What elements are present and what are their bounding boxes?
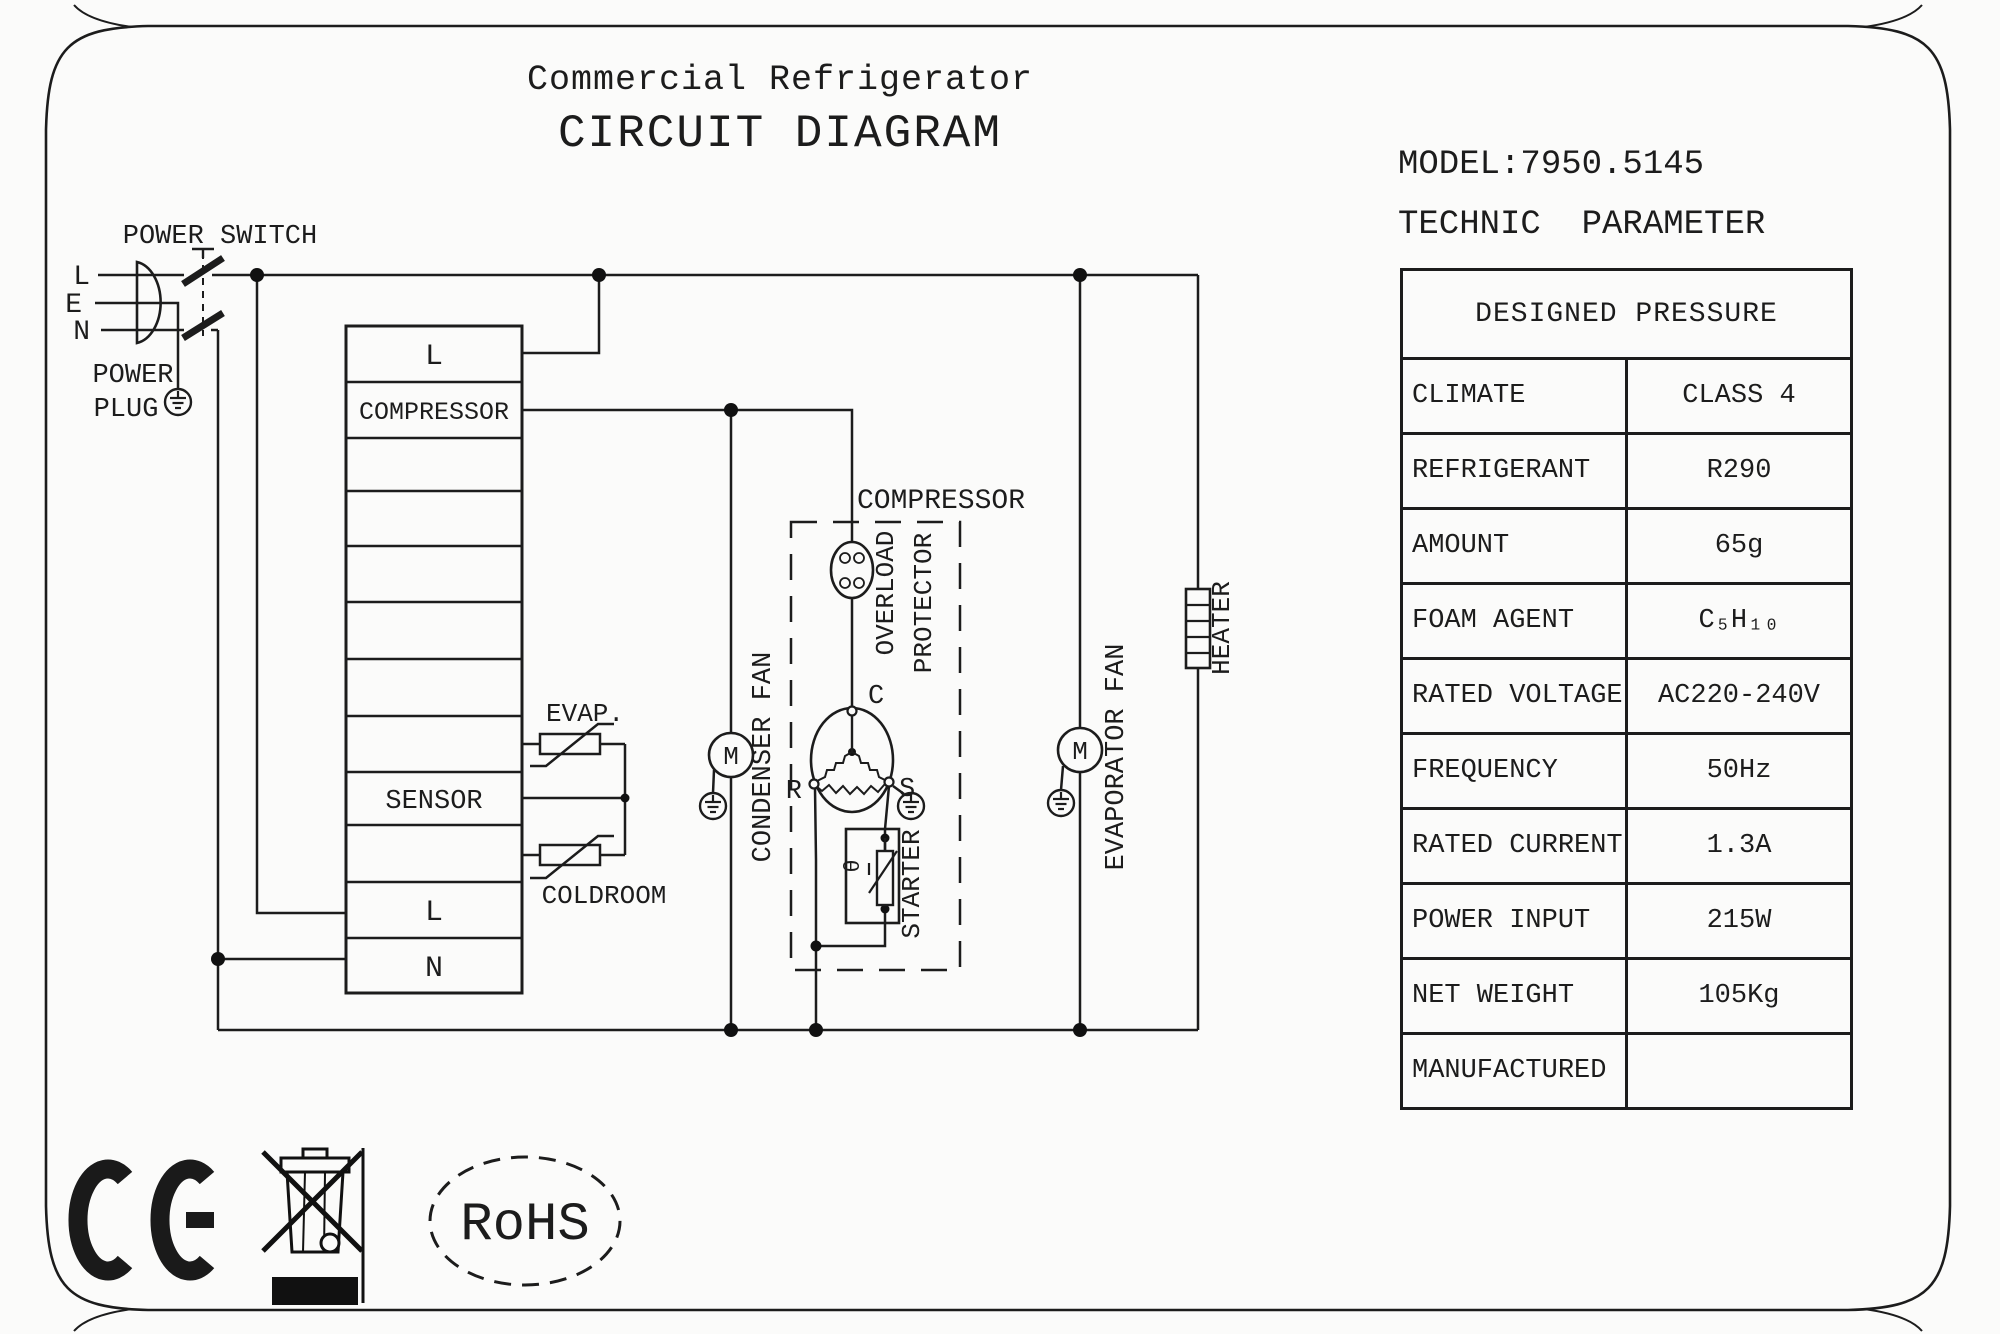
junction-dots <box>211 268 1087 1037</box>
table-row: CLIMATE CLASS 4 <box>1402 359 1852 434</box>
row-value: R290 <box>1627 434 1852 509</box>
title-block: Commercial Refrigerator CIRCUIT DIAGRAM <box>470 60 1090 160</box>
row-value: 1.3A <box>1627 809 1852 884</box>
label-evaporator-fan: EVAPORATOR FAN <box>1102 644 1132 871</box>
power-switch-symbol <box>183 249 223 338</box>
row-value: CLASS 4 <box>1627 359 1852 434</box>
row-value <box>1627 1034 1852 1109</box>
wire-l-row-riser <box>522 275 599 353</box>
technic-parameter-heading: TECHNIC PARAMETER <box>1398 206 1765 244</box>
table-header-row: DESIGNED PRESSURE <box>1402 270 1852 359</box>
ce-mark-icon <box>78 1169 214 1271</box>
compressor-motor-symbol <box>810 707 894 813</box>
label-pin-n: N <box>73 317 90 348</box>
row-value: AC220-240V <box>1627 659 1852 734</box>
corner-ornament-bottom-right <box>1864 1309 1922 1331</box>
corner-ornament-bottom-left <box>74 1309 132 1331</box>
corner-ornament-top-left <box>74 5 132 27</box>
row-label: FREQUENCY <box>1402 734 1627 809</box>
corner-ornament-top-right <box>1864 5 1922 27</box>
row-label: CLIMATE <box>1402 359 1627 434</box>
label-pin-l: L <box>73 262 90 293</box>
page-subtitle: Commercial Refrigerator <box>470 60 1090 100</box>
row-label: AMOUNT <box>1402 509 1627 584</box>
table-row: RATED CURRENT 1.3A <box>1402 809 1852 884</box>
label-coldroom: COLDROOM <box>542 881 667 911</box>
row-value: 105Kg <box>1627 959 1852 1034</box>
label-terminal-r: R <box>786 777 802 807</box>
row-value: 215W <box>1627 884 1852 959</box>
row-label: RATED CURRENT <box>1402 809 1627 884</box>
row-label: MANUFACTURED <box>1402 1034 1627 1109</box>
label-terminal-s: S <box>899 775 915 805</box>
row-label: FOAM AGENT <box>1402 584 1627 659</box>
table-row: RATED VOLTAGE AC220-240V <box>1402 659 1852 734</box>
terminal-row-l: L <box>425 340 443 374</box>
row-label: POWER INPUT <box>1402 884 1627 959</box>
label-starter: STARTER <box>897 829 927 938</box>
table-header: DESIGNED PRESSURE <box>1402 270 1852 359</box>
table-row: POWER INPUT 215W <box>1402 884 1852 959</box>
terminal-row-l2: L <box>425 896 443 930</box>
row-value: 50Hz <box>1627 734 1852 809</box>
starter-symbol <box>846 829 899 923</box>
model-number: MODEL:7950.5145 <box>1398 146 1704 184</box>
label-overload: OVERLOAD <box>871 531 901 656</box>
table-row: FREQUENCY 50Hz <box>1402 734 1852 809</box>
scanned-circuit-diagram-page: POWER SWITCH L E N POWER PLUG L COMPRESS… <box>0 0 2000 1334</box>
table-row: REFRIGERANT R290 <box>1402 434 1852 509</box>
technic-parameter-table: DESIGNED PRESSURE CLIMATE CLASS 4 REFRIG… <box>1400 268 1853 1110</box>
row-label: RATED VOLTAGE <box>1402 659 1627 734</box>
coldroom-thermistor <box>530 836 614 878</box>
table-row: AMOUNT 65g <box>1402 509 1852 584</box>
weee-bin-icon <box>263 1148 363 1305</box>
circuit-wires <box>95 275 1198 1030</box>
label-compressor: COMPRESSOR <box>857 486 1025 517</box>
table-row: MANUFACTURED <box>1402 1034 1852 1109</box>
power-plug-symbol <box>137 262 191 415</box>
wire-live-rail <box>257 275 346 913</box>
label-terminal-c: C <box>868 682 884 712</box>
ground-icon <box>165 389 191 415</box>
page-title: CIRCUIT DIAGRAM <box>470 108 1090 160</box>
label-heater: HEATER <box>1207 581 1237 675</box>
rohs-label: RoHS <box>460 1195 590 1256</box>
motor-letter-evaporator: M <box>1072 737 1088 767</box>
row-value: C₅H₁₀ <box>1627 584 1852 659</box>
ground-icon <box>700 793 726 819</box>
row-label: REFRIGERANT <box>1402 434 1627 509</box>
label-theta: θ <box>841 859 866 872</box>
table-row: FOAM AGENT C₅H₁₀ <box>1402 584 1852 659</box>
terminal-row-n: N <box>425 952 443 986</box>
label-condenser-fan: CONDENSER FAN <box>749 652 779 863</box>
label-evap: EVAP. <box>546 699 624 729</box>
terminal-row-compressor: COMPRESSOR <box>359 398 509 427</box>
wire-run-winding <box>815 788 816 1030</box>
terminal-row-sensor: SENSOR <box>385 787 482 817</box>
motor-letter-condenser: M <box>723 742 739 772</box>
label-power-switch: POWER SWITCH <box>123 222 317 252</box>
label-power-plug-1: POWER <box>92 361 173 391</box>
rohs-badge: RoHS <box>430 1157 620 1285</box>
row-label: NET WEIGHT <box>1402 959 1627 1034</box>
ground-icon <box>1048 790 1074 816</box>
label-power-plug-2: PLUG <box>94 395 159 425</box>
label-protector: PROTECTOR <box>909 533 939 673</box>
overload-protector-symbol <box>831 542 873 598</box>
row-value: 65g <box>1627 509 1852 584</box>
table-row: NET WEIGHT 105Kg <box>1402 959 1852 1034</box>
